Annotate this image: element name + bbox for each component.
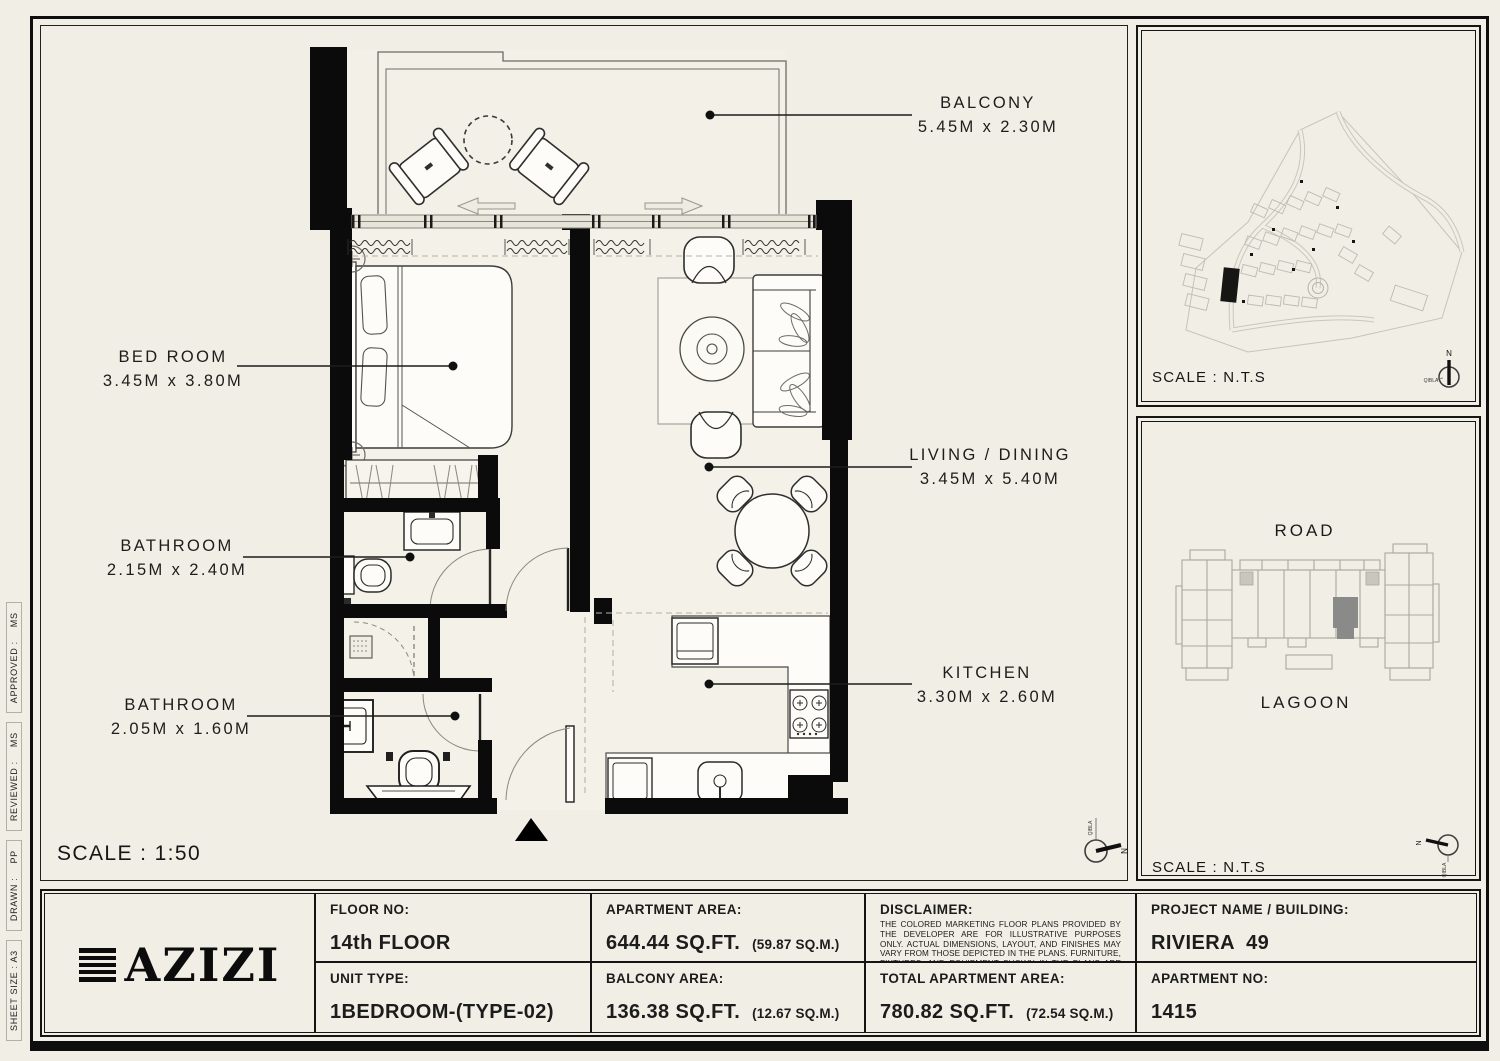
unit-type-value: 1BEDROOM-(TYPE-02)	[330, 1001, 576, 1024]
entrance-arrow-icon	[515, 818, 548, 841]
compass-site-icon: N QIBLA	[1424, 349, 1459, 387]
svg-text:QIBLA: QIBLA	[1424, 378, 1439, 384]
sheet-info-strip: SHEET SIZE : A3 DRAWN :PP REVIEWED :MS A…	[6, 595, 22, 1041]
apartment-area-cell: APARTMENT AREA: 644.44 SQ.FT. (59.87 SQ.…	[592, 894, 866, 963]
apartment-no-cell: APARTMENT NO: 1415	[1137, 963, 1476, 1032]
project-name-label: PROJECT NAME / BUILDING:	[1151, 902, 1462, 917]
unit-type-label: UNIT TYPE:	[330, 971, 576, 986]
compass-key-icon: N QIBLA	[1416, 835, 1458, 877]
svg-text:N: N	[1120, 848, 1128, 854]
balcony-area-value: 136.38 SQ.FT. (12.67 SQ.M.)	[606, 1001, 850, 1024]
floor-no-label: FLOOR NO:	[330, 902, 576, 917]
unit-type-cell: UNIT TYPE: 1BEDROOM-(TYPE-02)	[316, 963, 592, 1032]
svg-text:N: N	[1416, 840, 1423, 845]
apartment-area-value: 644.44 SQ.FT. (59.87 SQ.M.)	[606, 932, 850, 955]
project-name-cell: PROJECT NAME / BUILDING: RIVIERA 49	[1137, 894, 1476, 963]
floor-plan-sheet: N QIBLA BALCONY5.45M x 2.30M BED ROOM3.4…	[0, 0, 1500, 1061]
label-living-dining: LIVING / DINING3.45M x 5.40M	[909, 443, 1071, 491]
apartment-area-label: APARTMENT AREA:	[606, 902, 850, 917]
project-name-value: RIVIERA 49	[1151, 932, 1462, 955]
azizi-logo-bars-icon	[79, 948, 116, 981]
site-highlight-building	[1220, 267, 1239, 302]
total-area-value: 780.82 SQ.FT. (72.54 SQ.M.)	[880, 1001, 1121, 1024]
floor-no-cell: FLOOR NO: 14th FLOOR	[316, 894, 592, 963]
site-scale-label: SCALE : N.T.S	[1152, 369, 1266, 386]
svg-text:N: N	[1446, 349, 1452, 358]
label-kitchen: KITCHEN3.30M x 2.60M	[917, 661, 1057, 709]
total-area-metric: (72.54 SQ.M.)	[1026, 1006, 1113, 1021]
balcony-area-label: BALCONY AREA:	[606, 971, 850, 986]
floor-no-value: 14th FLOOR	[330, 932, 576, 955]
apartment-area-metric: (59.87 SQ.M.)	[752, 937, 839, 952]
armchair-top-icon	[684, 237, 734, 283]
main-scale-label: SCALE : 1:50	[57, 842, 201, 866]
key-scale-label: SCALE : N.T.S	[1152, 859, 1266, 876]
label-bathroom-1: BATHROOM2.15M x 2.40M	[107, 534, 247, 582]
azizi-logo-text: AZIZI	[125, 938, 281, 992]
key-plan-drawing: N QIBLA	[1136, 416, 1481, 881]
compass-main-icon: N QIBLA	[1085, 818, 1128, 862]
bed-icon	[346, 262, 512, 452]
sheet-size-box: SHEET SIZE : A3	[6, 940, 22, 1041]
disclaimer-text: THE COLORED MARKETING FLOOR PLANS PROVID…	[880, 920, 1121, 963]
label-bathroom-2: BATHROOM2.05M x 1.60M	[111, 693, 251, 741]
apartment-no-label: APARTMENT NO:	[1151, 971, 1462, 986]
site-plan-map: N QIBLA	[1136, 25, 1481, 407]
svg-text:QIBLA: QIBLA	[1442, 862, 1448, 877]
lagoon-label: LAGOON	[1261, 693, 1352, 713]
reviewed-box: REVIEWED :MS	[6, 722, 22, 831]
key-plan-highlight-unit	[1333, 597, 1358, 639]
road-label: ROAD	[1274, 521, 1335, 541]
disclaimer-label: DISCLAIMER:	[880, 902, 1121, 917]
apartment-no-value: 1415	[1151, 1001, 1462, 1024]
coffee-table-icon	[680, 317, 744, 381]
svg-text:QIBLA: QIBLA	[1088, 820, 1094, 835]
total-area-cell: TOTAL APARTMENT AREA: 780.82 SQ.FT. (72.…	[866, 963, 1137, 1032]
balcony-area-metric: (12.67 SQ.M.)	[752, 1006, 839, 1021]
logo-cell: AZIZI	[45, 894, 316, 1032]
label-balcony: BALCONY5.45M x 2.30M	[918, 91, 1058, 139]
approved-box: APPROVED :MS	[6, 602, 22, 713]
disclaimer-cell: DISCLAIMER: THE COLORED MARKETING FLOOR …	[866, 894, 1137, 963]
armchair-bottom-icon	[691, 412, 741, 458]
label-bedroom: BED ROOM3.45M x 3.80M	[103, 345, 243, 393]
title-block: AZIZI FLOOR NO: 14th FLOOR APARTMENT ARE…	[40, 889, 1481, 1037]
balcony-area-cell: BALCONY AREA: 136.38 SQ.FT. (12.67 SQ.M.…	[592, 963, 866, 1032]
azizi-logo: AZIZI	[79, 938, 281, 992]
drawn-box: DRAWN :PP	[6, 840, 22, 931]
total-area-label: TOTAL APARTMENT AREA:	[880, 971, 1121, 986]
sofa-icon	[753, 275, 824, 427]
